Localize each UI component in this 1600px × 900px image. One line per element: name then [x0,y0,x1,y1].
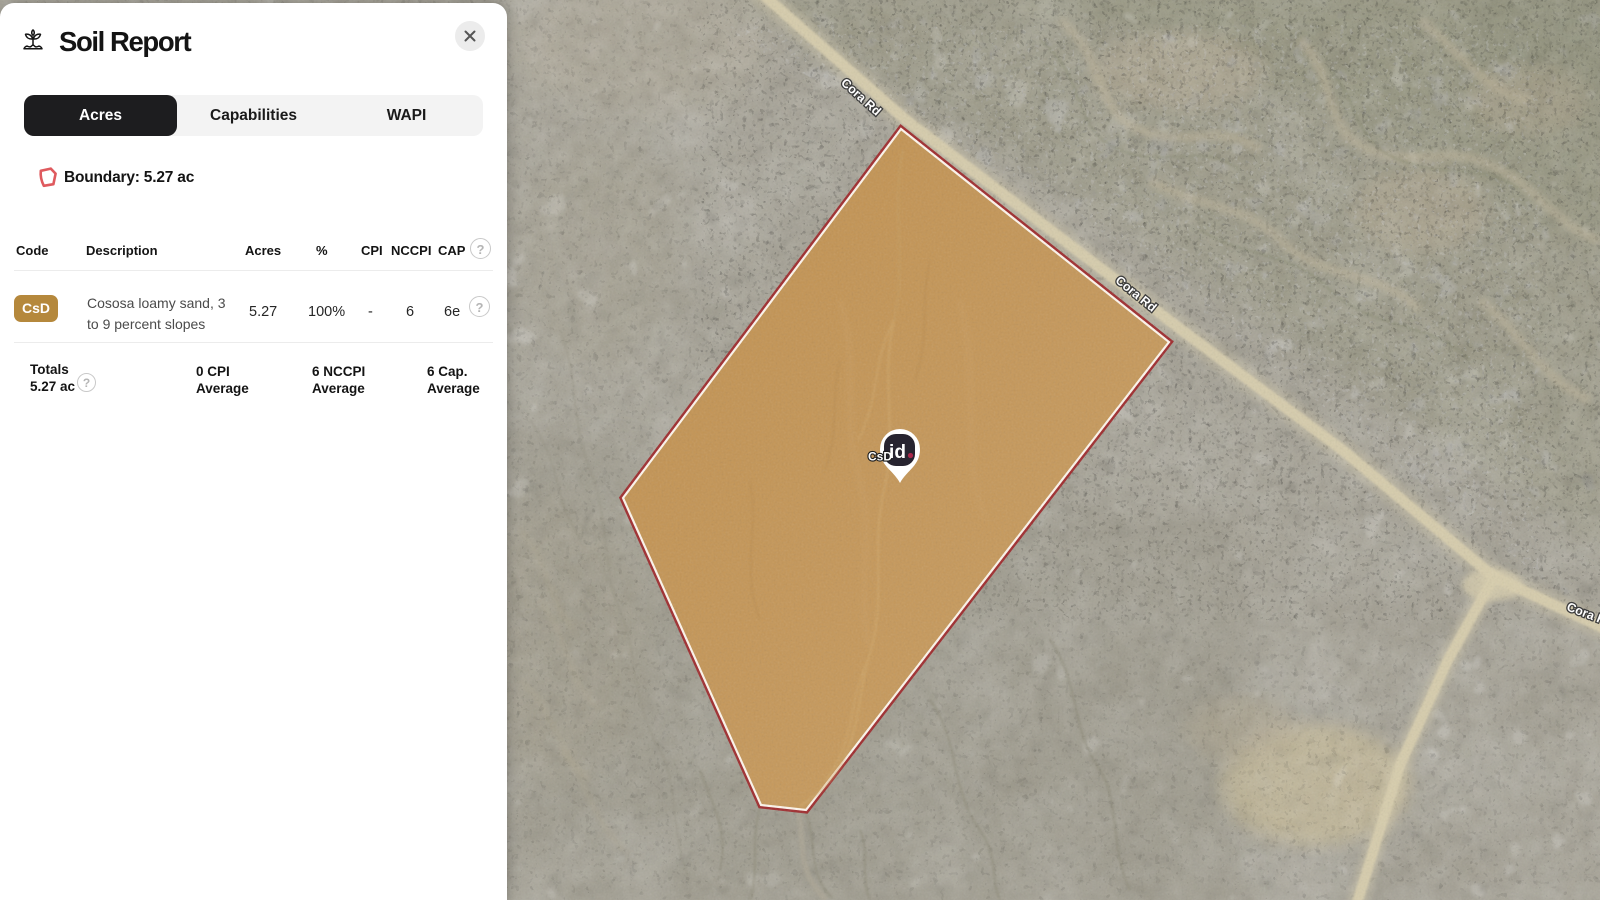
svg-text:id: id [889,442,906,463]
